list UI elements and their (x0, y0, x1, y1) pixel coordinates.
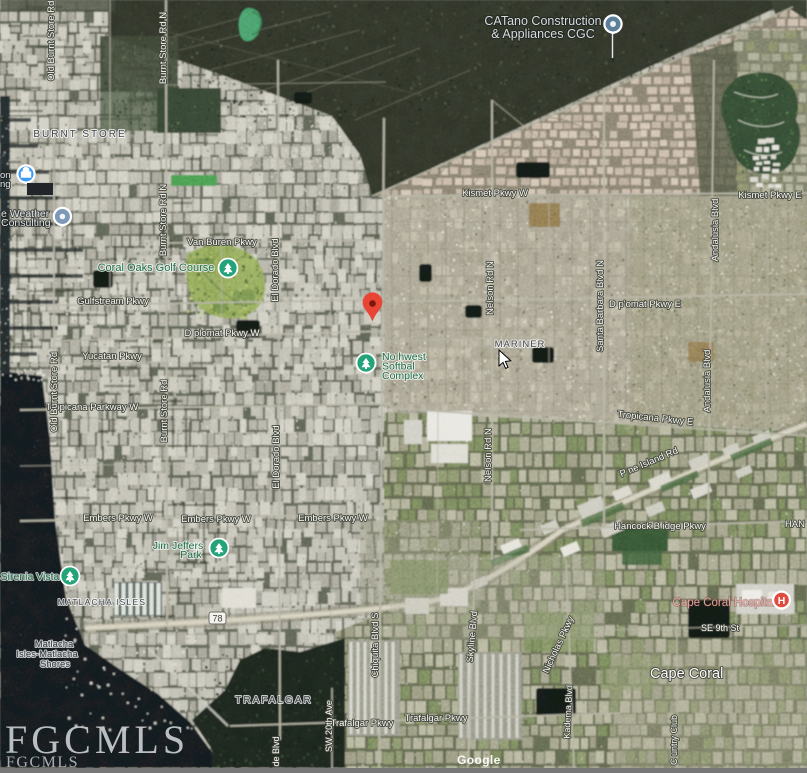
svg-text:Gulfstream Pkwy: Gulfstream Pkwy (77, 296, 149, 307)
svg-text:Complex: Complex (382, 370, 424, 382)
svg-text:MARINER: MARINER (495, 339, 546, 350)
svg-text:Old Burnt Store Rd N: Old Burnt Store Rd N (46, 0, 57, 81)
svg-text:Trafalgar Pkwy: Trafalgar Pkwy (405, 713, 468, 724)
svg-text:Old Burnt Store Rd: Old Burnt Store Rd (49, 352, 60, 432)
svg-text:H: H (778, 595, 786, 607)
svg-text:TRAFALGAR: TRAFALGAR (235, 695, 312, 706)
svg-text:Burnt Store Rd: Burnt Store Rd (159, 380, 170, 443)
svg-text:MATLACHA ISLES: MATLACHA ISLES (58, 597, 146, 607)
svg-text:Sirenia Vista: Sirenia Vista (1, 571, 60, 583)
svg-text:HAN: HAN (785, 519, 805, 530)
svg-text:Kismet Pkwy E: Kismet Pkwy E (738, 190, 801, 201)
svg-text:Hancock B idge Pkwy: Hancock B idge Pkwy (614, 521, 706, 532)
svg-text:SE 9th St: SE 9th St (701, 623, 740, 633)
svg-text:Andalusia Blvd: Andalusia Blvd (702, 350, 713, 413)
svg-text:El Dorado Blvd: El Dorado Blvd (271, 425, 282, 488)
svg-text:Van Buren Pkwy: Van Buren Pkwy (187, 237, 257, 248)
svg-text:D plomat Pkwy W: D plomat Pkwy W (185, 328, 260, 339)
svg-text:ng: ng (0, 179, 11, 190)
svg-text:Yucatan Pkwy: Yucatan Pkwy (82, 351, 142, 362)
svg-text:D p'omat Pkwy E: D p'omat Pkwy E (609, 299, 681, 310)
svg-text:Nelson Rd N: Nelson Rd N (483, 428, 494, 482)
svg-text:Burnt Store Rd N: Burnt Store Rd N (158, 12, 169, 84)
svg-text:Google: Google (457, 753, 501, 767)
svg-text:SW 20th Ave: SW 20th Ave (324, 700, 334, 752)
svg-text:El Dorado Blvd: El Dorado Blvd (270, 238, 281, 301)
svg-text:Chiquita Blvd S: Chiquita Blvd S (370, 613, 381, 678)
svg-text:Burnt Store Rd N: Burnt Store Rd N (158, 184, 169, 256)
svg-text:Kismet Pkwy W: Kismet Pkwy W (462, 188, 528, 199)
svg-text:BURNT STORE: BURNT STORE (33, 129, 126, 140)
svg-text:78: 78 (212, 614, 222, 624)
svg-text:Trafalgar Pkwy: Trafalgar Pkwy (331, 718, 394, 729)
svg-text:Embers Pkwy W: Embers Pkwy W (181, 514, 251, 525)
svg-text:Cape Coral: Cape Coral (650, 666, 723, 682)
svg-text:Embers Pkwy W: Embers Pkwy W (298, 513, 368, 524)
svg-text:Coral Oaks Golf Course: Coral Oaks Golf Course (98, 262, 215, 274)
svg-text:s de Blvd: s de Blvd (271, 736, 281, 768)
svg-text:Park: Park (180, 549, 202, 561)
svg-text:FGCMLS: FGCMLS (6, 754, 79, 768)
svg-text:Consulting: Consulting (1, 217, 51, 229)
svg-text:Santa Barbara Blvd N: Santa Barbara Blvd N (595, 260, 606, 352)
svg-text:& Appliances CGC: & Appliances CGC (491, 27, 595, 41)
svg-text:Nelson Rd N: Nelson Rd N (485, 261, 496, 315)
svg-text:Andalusia Blvd: Andalusia Blvd (710, 199, 721, 262)
svg-text:C untry Club: C untry Club (669, 715, 679, 765)
svg-text:Shores: Shores (40, 659, 70, 670)
svg-text:CATano Construction: CATano Construction (484, 14, 601, 28)
svg-text:Cape Coral Hospital: Cape Coral Hospital (673, 597, 776, 609)
svg-text:Embers Pkwy W: Embers Pkwy W (83, 513, 153, 524)
